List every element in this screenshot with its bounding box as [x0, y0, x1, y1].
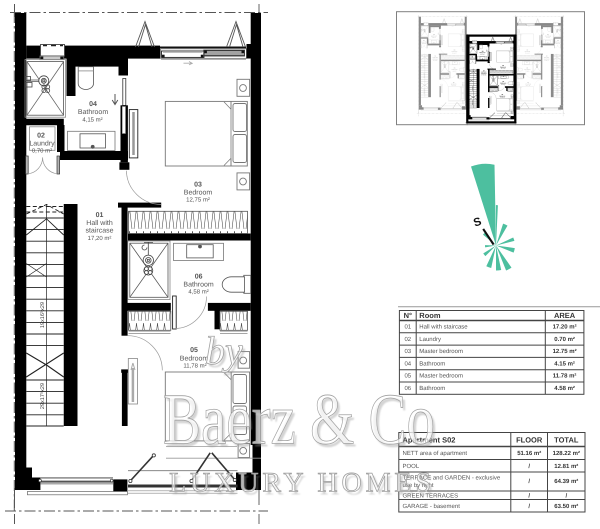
svg-text:03: 03 — [194, 182, 202, 189]
svg-text:03: 03 — [404, 348, 411, 355]
svg-text:4.15 m²: 4.15 m² — [554, 360, 575, 367]
svg-text:4.58 m²: 4.58 m² — [554, 385, 575, 392]
svg-text:Laundry: Laundry — [419, 336, 441, 343]
svg-text:17.20 m²: 17.20 m² — [553, 324, 577, 331]
svg-text:Room: Room — [419, 311, 441, 320]
svg-text:0.70 m²: 0.70 m² — [554, 336, 575, 343]
svg-text:51.16 m²: 51.16 m² — [517, 450, 541, 457]
svg-text:Baerz & Co: Baerz & Co — [163, 379, 435, 460]
svg-text:FLOOR: FLOOR — [516, 436, 543, 445]
svg-text:4,58 m²: 4,58 m² — [188, 289, 208, 296]
svg-text:Laundry: Laundry — [29, 140, 55, 148]
svg-text:05: 05 — [190, 347, 198, 354]
svg-text:11.78 m²: 11.78 m² — [553, 373, 577, 380]
svg-text:128.22 m²: 128.22 m² — [553, 450, 580, 457]
svg-text:0,70 m²: 0,70 m² — [32, 148, 52, 155]
svg-text:TOTAL: TOTAL — [554, 436, 579, 445]
svg-text:11,78 m²: 11,78 m² — [183, 363, 206, 370]
svg-text:01: 01 — [96, 212, 104, 219]
svg-text:Bathroom: Bathroom — [183, 281, 214, 289]
svg-text:64.39 m²: 64.39 m² — [554, 478, 578, 485]
svg-text:/: / — [528, 478, 530, 485]
svg-text:staircase: staircase — [85, 227, 113, 235]
svg-text:Bedroom: Bedroom — [184, 189, 213, 197]
svg-text:/: / — [528, 493, 530, 500]
svg-text:19x16⁵x29: 19x16⁵x29 — [40, 302, 46, 328]
svg-text:/: / — [528, 463, 530, 470]
svg-text:/: / — [528, 503, 530, 510]
svg-text:04: 04 — [404, 360, 411, 367]
svg-text:06: 06 — [195, 274, 203, 281]
svg-text:17,20 m²: 17,20 m² — [88, 235, 112, 242]
svg-text:AREA: AREA — [554, 311, 576, 320]
svg-text:GARAGE - basement: GARAGE - basement — [403, 503, 461, 510]
svg-text:Bathroom: Bathroom — [78, 108, 109, 116]
svg-text:01: 01 — [404, 324, 411, 331]
svg-text:04: 04 — [89, 101, 97, 108]
svg-text:Bathroom: Bathroom — [419, 360, 445, 367]
svg-text:12.75 m²: 12.75 m² — [553, 348, 577, 355]
svg-text:12.81 m²: 12.81 m² — [554, 463, 578, 470]
svg-text:/: / — [565, 493, 567, 500]
svg-text:4,15 m²: 4,15 m² — [82, 117, 102, 124]
svg-text:12,75 m²: 12,75 m² — [186, 197, 210, 204]
svg-text:S: S — [472, 216, 483, 230]
svg-text:by: by — [205, 328, 243, 373]
svg-text:Master bedroom: Master bedroom — [419, 348, 463, 355]
svg-text:N°: N° — [404, 311, 412, 320]
svg-text:02: 02 — [404, 336, 411, 343]
svg-text:63.50 m²: 63.50 m² — [554, 503, 578, 510]
svg-text:02: 02 — [37, 133, 45, 140]
svg-text:Hall with staircase: Hall with staircase — [419, 324, 468, 331]
svg-text:29x17⁵x29: 29x17⁵x29 — [40, 383, 46, 409]
svg-text:Hall with: Hall with — [86, 219, 113, 227]
